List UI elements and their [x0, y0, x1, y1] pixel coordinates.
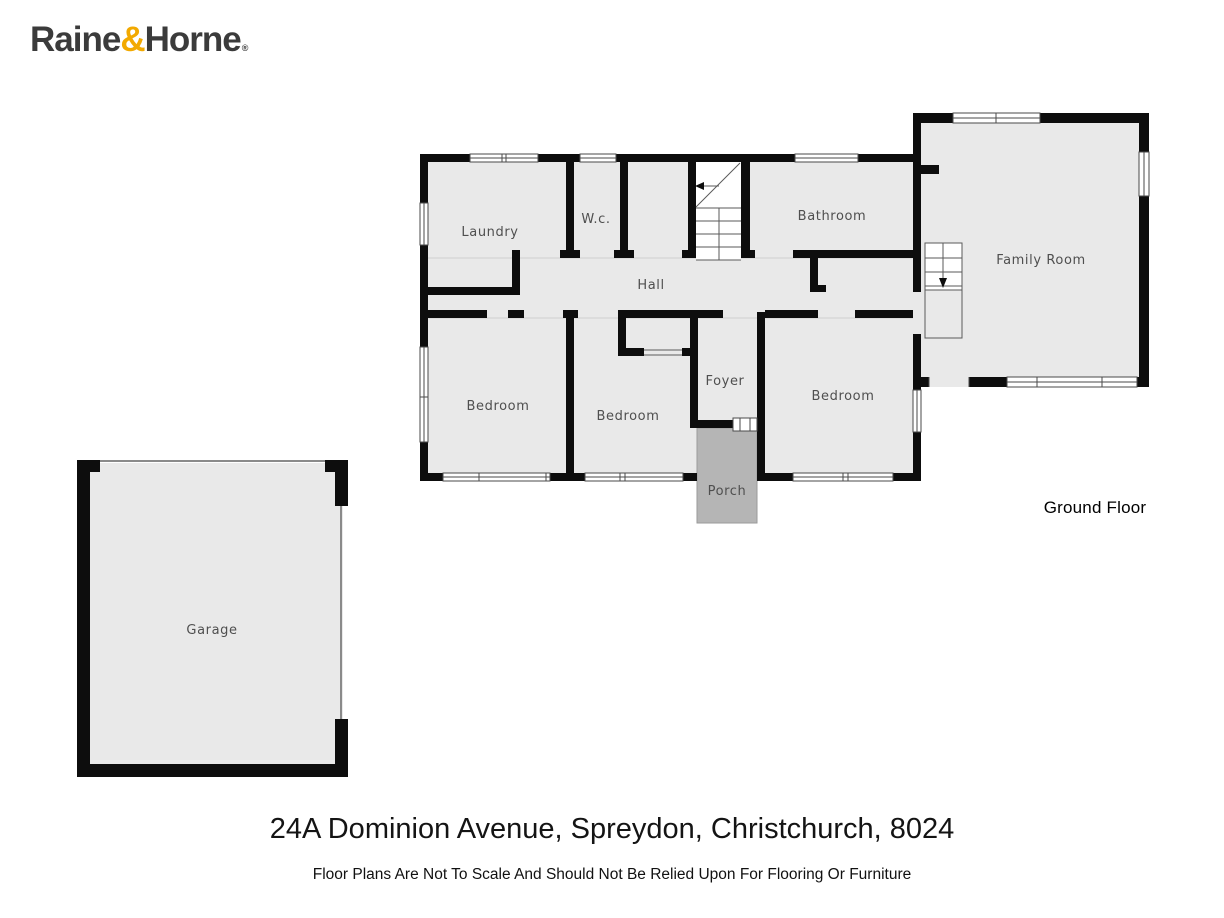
room-label-wc: W.c.	[581, 212, 610, 227]
room-label-bedroom-right: Bedroom	[812, 389, 875, 404]
room-label-garage: Garage	[186, 623, 237, 638]
front-door	[733, 418, 757, 431]
property-address: 24A Dominion Avenue, Spreydon, Christchu…	[0, 813, 1224, 846]
room-label-bedroom-middle: Bedroom	[597, 409, 660, 424]
garage-floor	[90, 463, 343, 766]
room-label-laundry: Laundry	[461, 225, 518, 240]
room-label-foyer: Foyer	[705, 374, 744, 389]
main-staircase	[695, 162, 741, 260]
room-label-family-room: Family Room	[996, 253, 1086, 268]
floorplan-canvas: Laundry W.c. Hall Bathroom Family Room B…	[0, 0, 1224, 918]
room-label-bathroom: Bathroom	[798, 209, 867, 224]
floor-level-label: Ground Floor	[1044, 498, 1147, 517]
room-label-porch: Porch	[708, 484, 747, 499]
porch-floor	[697, 428, 757, 523]
disclaimer-text: Floor Plans Are Not To Scale And Should …	[0, 866, 1224, 884]
family-room-doorway-floor	[913, 290, 923, 334]
room-label-bedroom-left: Bedroom	[467, 399, 530, 414]
floor-areas	[90, 117, 1145, 766]
room-label-hall: Hall	[637, 278, 664, 293]
